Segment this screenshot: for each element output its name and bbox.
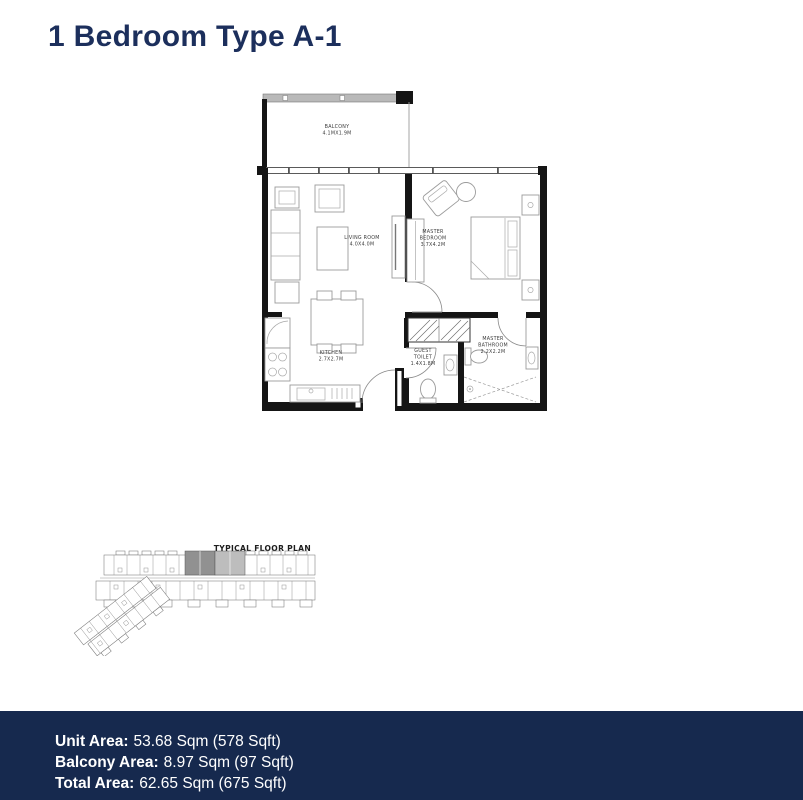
room-label-balcony: BALCONY 4.1MX1.9M	[322, 124, 351, 137]
unit-area-label: Unit Area:	[55, 733, 129, 750]
tv-console	[392, 216, 405, 278]
dining-table	[311, 291, 363, 353]
svg-text:GUEST: GUEST	[414, 348, 431, 354]
room-label-master-bedroom: MASTER BEDROOM 3.7X4.2M	[420, 229, 447, 248]
svg-text:4.1MX1.9M: 4.1MX1.9M	[322, 131, 351, 137]
total-area-row: Total Area:62.65 Sqm (675 Sqft)	[55, 773, 803, 794]
balcony-railing	[263, 91, 413, 104]
wardrobe-hatched	[408, 318, 470, 342]
svg-text:BEDROOM: BEDROOM	[420, 236, 447, 242]
bathroom-basin	[526, 347, 538, 369]
balcony-area-row: Balcony Area:8.97 Sqm (97 Sqft)	[55, 752, 803, 773]
entrance-door	[353, 368, 404, 411]
svg-text:1.4X1.8M: 1.4X1.8M	[411, 361, 436, 367]
armchair	[422, 180, 460, 218]
total-area-label: Total Area:	[55, 775, 134, 792]
side-table-round	[457, 183, 476, 202]
sofa	[271, 187, 300, 303]
svg-text:LIVING ROOM: LIVING ROOM	[344, 235, 379, 241]
svg-text:2.7X2.7M: 2.7X2.7M	[319, 357, 344, 363]
svg-text:MASTER: MASTER	[482, 336, 504, 342]
unit-area-row: Unit Area:53.68 Sqm (578 Sqft)	[55, 731, 803, 752]
area-summary-footer: Unit Area:53.68 Sqm (578 Sqft) Balcony A…	[0, 711, 803, 800]
bedroom-door	[412, 282, 442, 312]
svg-text:KITCHEN: KITCHEN	[320, 350, 343, 356]
room-label-guest-toilet: GUEST TOILET 1.4X1.8M	[411, 348, 436, 367]
room-label-kitchen: KITCHEN 2.7X2.7M	[319, 350, 344, 363]
svg-text:TOILET: TOILET	[413, 355, 432, 361]
svg-text:BATHROOM: BATHROOM	[478, 343, 508, 349]
svg-text:BALCONY: BALCONY	[325, 124, 350, 130]
tv-cabinet	[315, 185, 344, 212]
room-label-master-bathroom: MASTER BATHROOM 2.2X2.2M	[478, 336, 508, 355]
guest-toilet-basin	[444, 355, 457, 375]
coffee-table	[317, 227, 348, 270]
svg-text:3.7X4.2M: 3.7X4.2M	[421, 242, 446, 248]
guest-toilet-wc	[420, 379, 436, 403]
room-label-living-room: LIVING ROOM 4.0X4.0M	[344, 235, 379, 248]
sink-counter	[290, 385, 360, 402]
balcony-area-value: 8.97 Sqm (97 Sqft)	[164, 754, 294, 771]
kitchen-counter	[265, 318, 290, 348]
floor-plan-drawing: BALCONY 4.1MX1.9M LIVING ROOM 4.0X4.0M M…	[250, 85, 555, 420]
window-wall	[257, 166, 547, 175]
stove	[265, 348, 290, 381]
svg-text:2.2X2.2M: 2.2X2.2M	[481, 349, 506, 355]
unit-area-value: 53.68 Sqm (578 Sqft)	[134, 733, 281, 750]
bedroom-wardrobe	[407, 219, 424, 282]
typical-floor-plan-drawing: TYPICAL FLOOR PLAN	[56, 538, 322, 656]
svg-text:MASTER: MASTER	[422, 229, 444, 235]
balcony-area-label: Balcony Area:	[55, 754, 159, 771]
bed	[471, 195, 539, 300]
shower-area	[464, 377, 536, 402]
total-area-value: 62.65 Sqm (675 Sqft)	[139, 775, 286, 792]
svg-text:4.0X4.0M: 4.0X4.0M	[350, 242, 375, 248]
page-title: 1 Bedroom Type A-1	[48, 20, 342, 54]
walls	[262, 168, 547, 411]
